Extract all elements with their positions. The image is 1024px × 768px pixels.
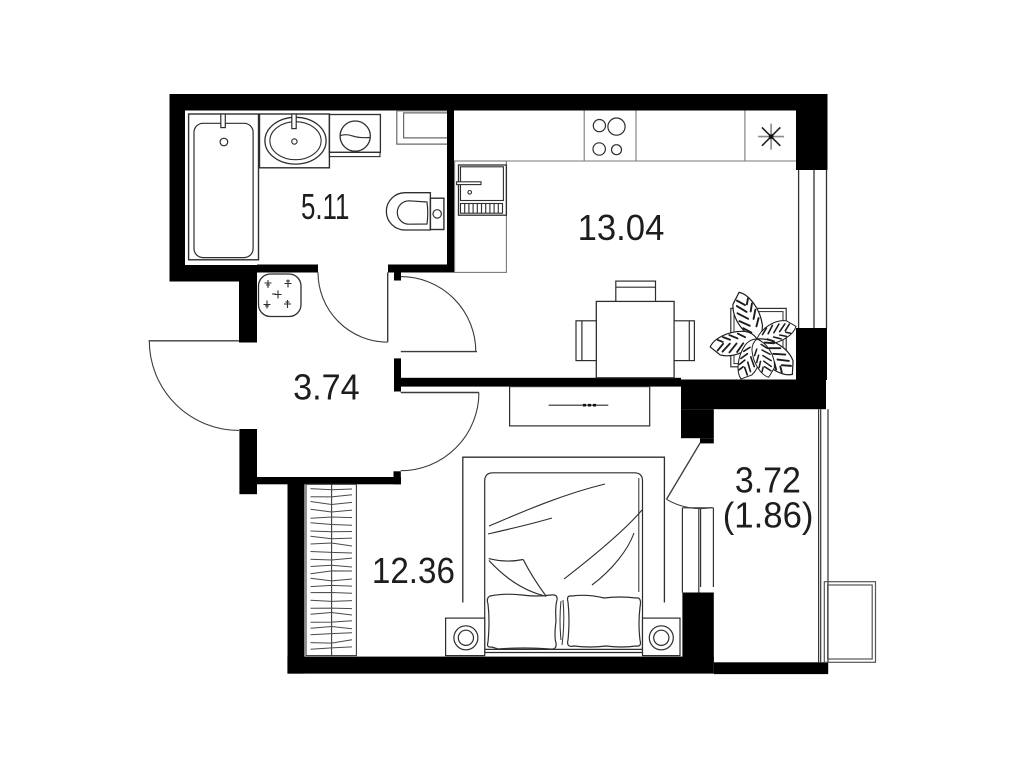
svg-text:13.04: 13.04 bbox=[578, 207, 665, 248]
svg-text:3.74: 3.74 bbox=[293, 367, 360, 408]
svg-text:5.11: 5.11 bbox=[301, 186, 350, 227]
svg-text:(1.86): (1.86) bbox=[723, 495, 814, 536]
svg-text:12.36: 12.36 bbox=[372, 550, 455, 591]
